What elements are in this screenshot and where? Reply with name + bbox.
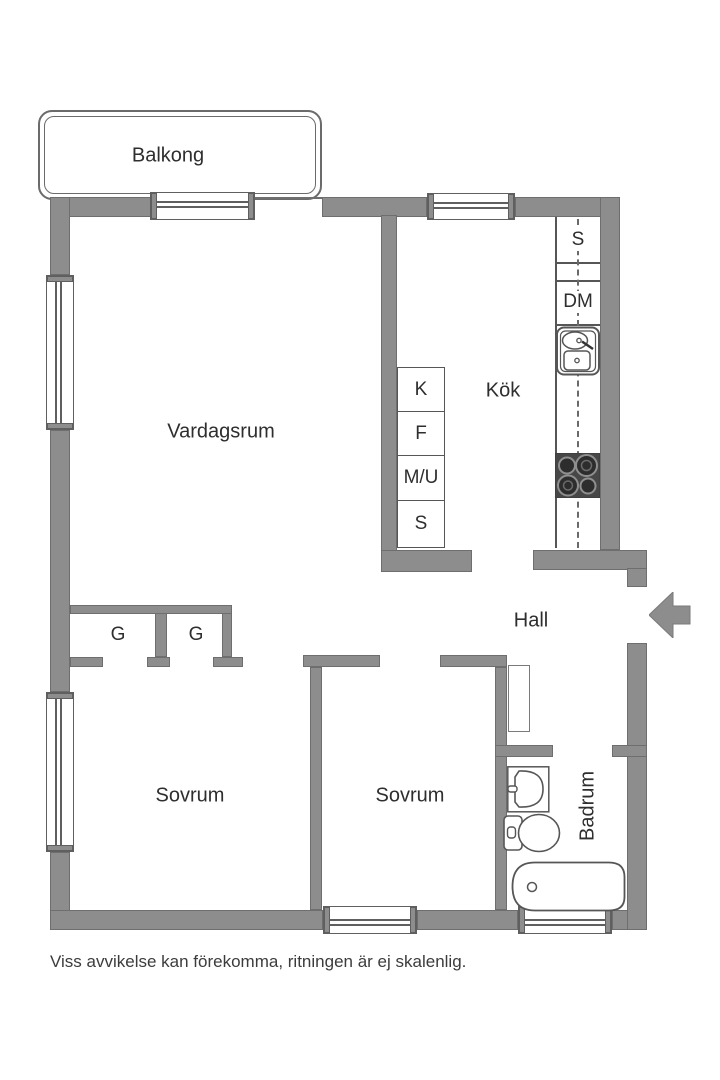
window-living-room xyxy=(46,275,74,430)
disclaimer-caption: Viss avvikelse kan förekomma, ritningen … xyxy=(50,952,466,972)
wall-segment xyxy=(627,643,647,930)
wall-segment xyxy=(612,745,647,757)
balcony-door-opening-line xyxy=(255,197,322,199)
wall-bedroom-divider xyxy=(310,667,322,910)
window-bedroom1 xyxy=(46,692,74,852)
cabinet-label: M/U xyxy=(404,467,439,489)
kitchen-cabinet-K: K xyxy=(397,367,445,412)
kitchen-label: Kök xyxy=(486,380,520,403)
toilet xyxy=(503,812,561,854)
kitchen-cabinet-MU: M/U xyxy=(397,455,445,501)
stove xyxy=(555,453,600,498)
wall-closet-top xyxy=(70,605,232,614)
window-bedroom2 xyxy=(323,906,417,934)
kitchen-cabinet-F: F xyxy=(397,411,445,457)
wall-segment xyxy=(381,550,472,572)
wall-segment xyxy=(50,430,70,692)
closet1-label: G xyxy=(111,624,126,646)
wall-kitchen-divider xyxy=(381,215,397,572)
wall-segment xyxy=(50,910,323,930)
hall-wardrobe xyxy=(508,665,530,732)
wall-bathroom-left xyxy=(495,667,507,910)
bedroom1-label: Sovrum xyxy=(156,785,225,808)
wall-segment xyxy=(417,910,518,930)
kitchen-cabinet-S: S xyxy=(397,500,445,548)
entrance-arrow-icon xyxy=(649,592,691,638)
cabinet-label: K xyxy=(415,379,428,401)
wall-segment xyxy=(147,657,170,667)
wall-segment xyxy=(600,197,620,550)
wall-segment xyxy=(50,197,70,275)
wall-closet-divider xyxy=(155,613,167,657)
washbasin xyxy=(507,766,550,813)
counter-edge-line xyxy=(555,217,557,548)
closet2-label: G xyxy=(189,624,204,646)
bedroom2-label: Sovrum xyxy=(376,785,445,808)
window-kitchen xyxy=(427,193,515,220)
wall-segment xyxy=(627,568,647,587)
wall-segment xyxy=(213,657,243,667)
balcony-label: Balkong xyxy=(132,145,204,168)
cabinet-label: F xyxy=(415,423,427,445)
hall-label: Hall xyxy=(514,610,548,633)
counter-center-dashed-line xyxy=(577,219,579,548)
floor-plan: Balkong xyxy=(0,0,720,1080)
wall-segment xyxy=(70,657,103,667)
wall-segment xyxy=(440,655,507,667)
wall-segment xyxy=(303,655,380,667)
bathroom-label: Badrum xyxy=(577,771,600,841)
counter-unit-DM-label: DM xyxy=(560,291,596,313)
cabinet-label: S xyxy=(415,513,428,535)
window-balcony-door xyxy=(150,192,255,220)
wall-segment xyxy=(222,613,232,657)
wall-bathroom-top xyxy=(495,745,553,757)
counter-unit-S-label: S xyxy=(569,229,588,251)
kitchen-sink xyxy=(555,326,601,377)
wall-segment xyxy=(322,197,427,217)
living-room-label: Vardagsrum xyxy=(167,421,274,444)
bathtub xyxy=(511,861,626,912)
wall-segment xyxy=(533,550,647,570)
